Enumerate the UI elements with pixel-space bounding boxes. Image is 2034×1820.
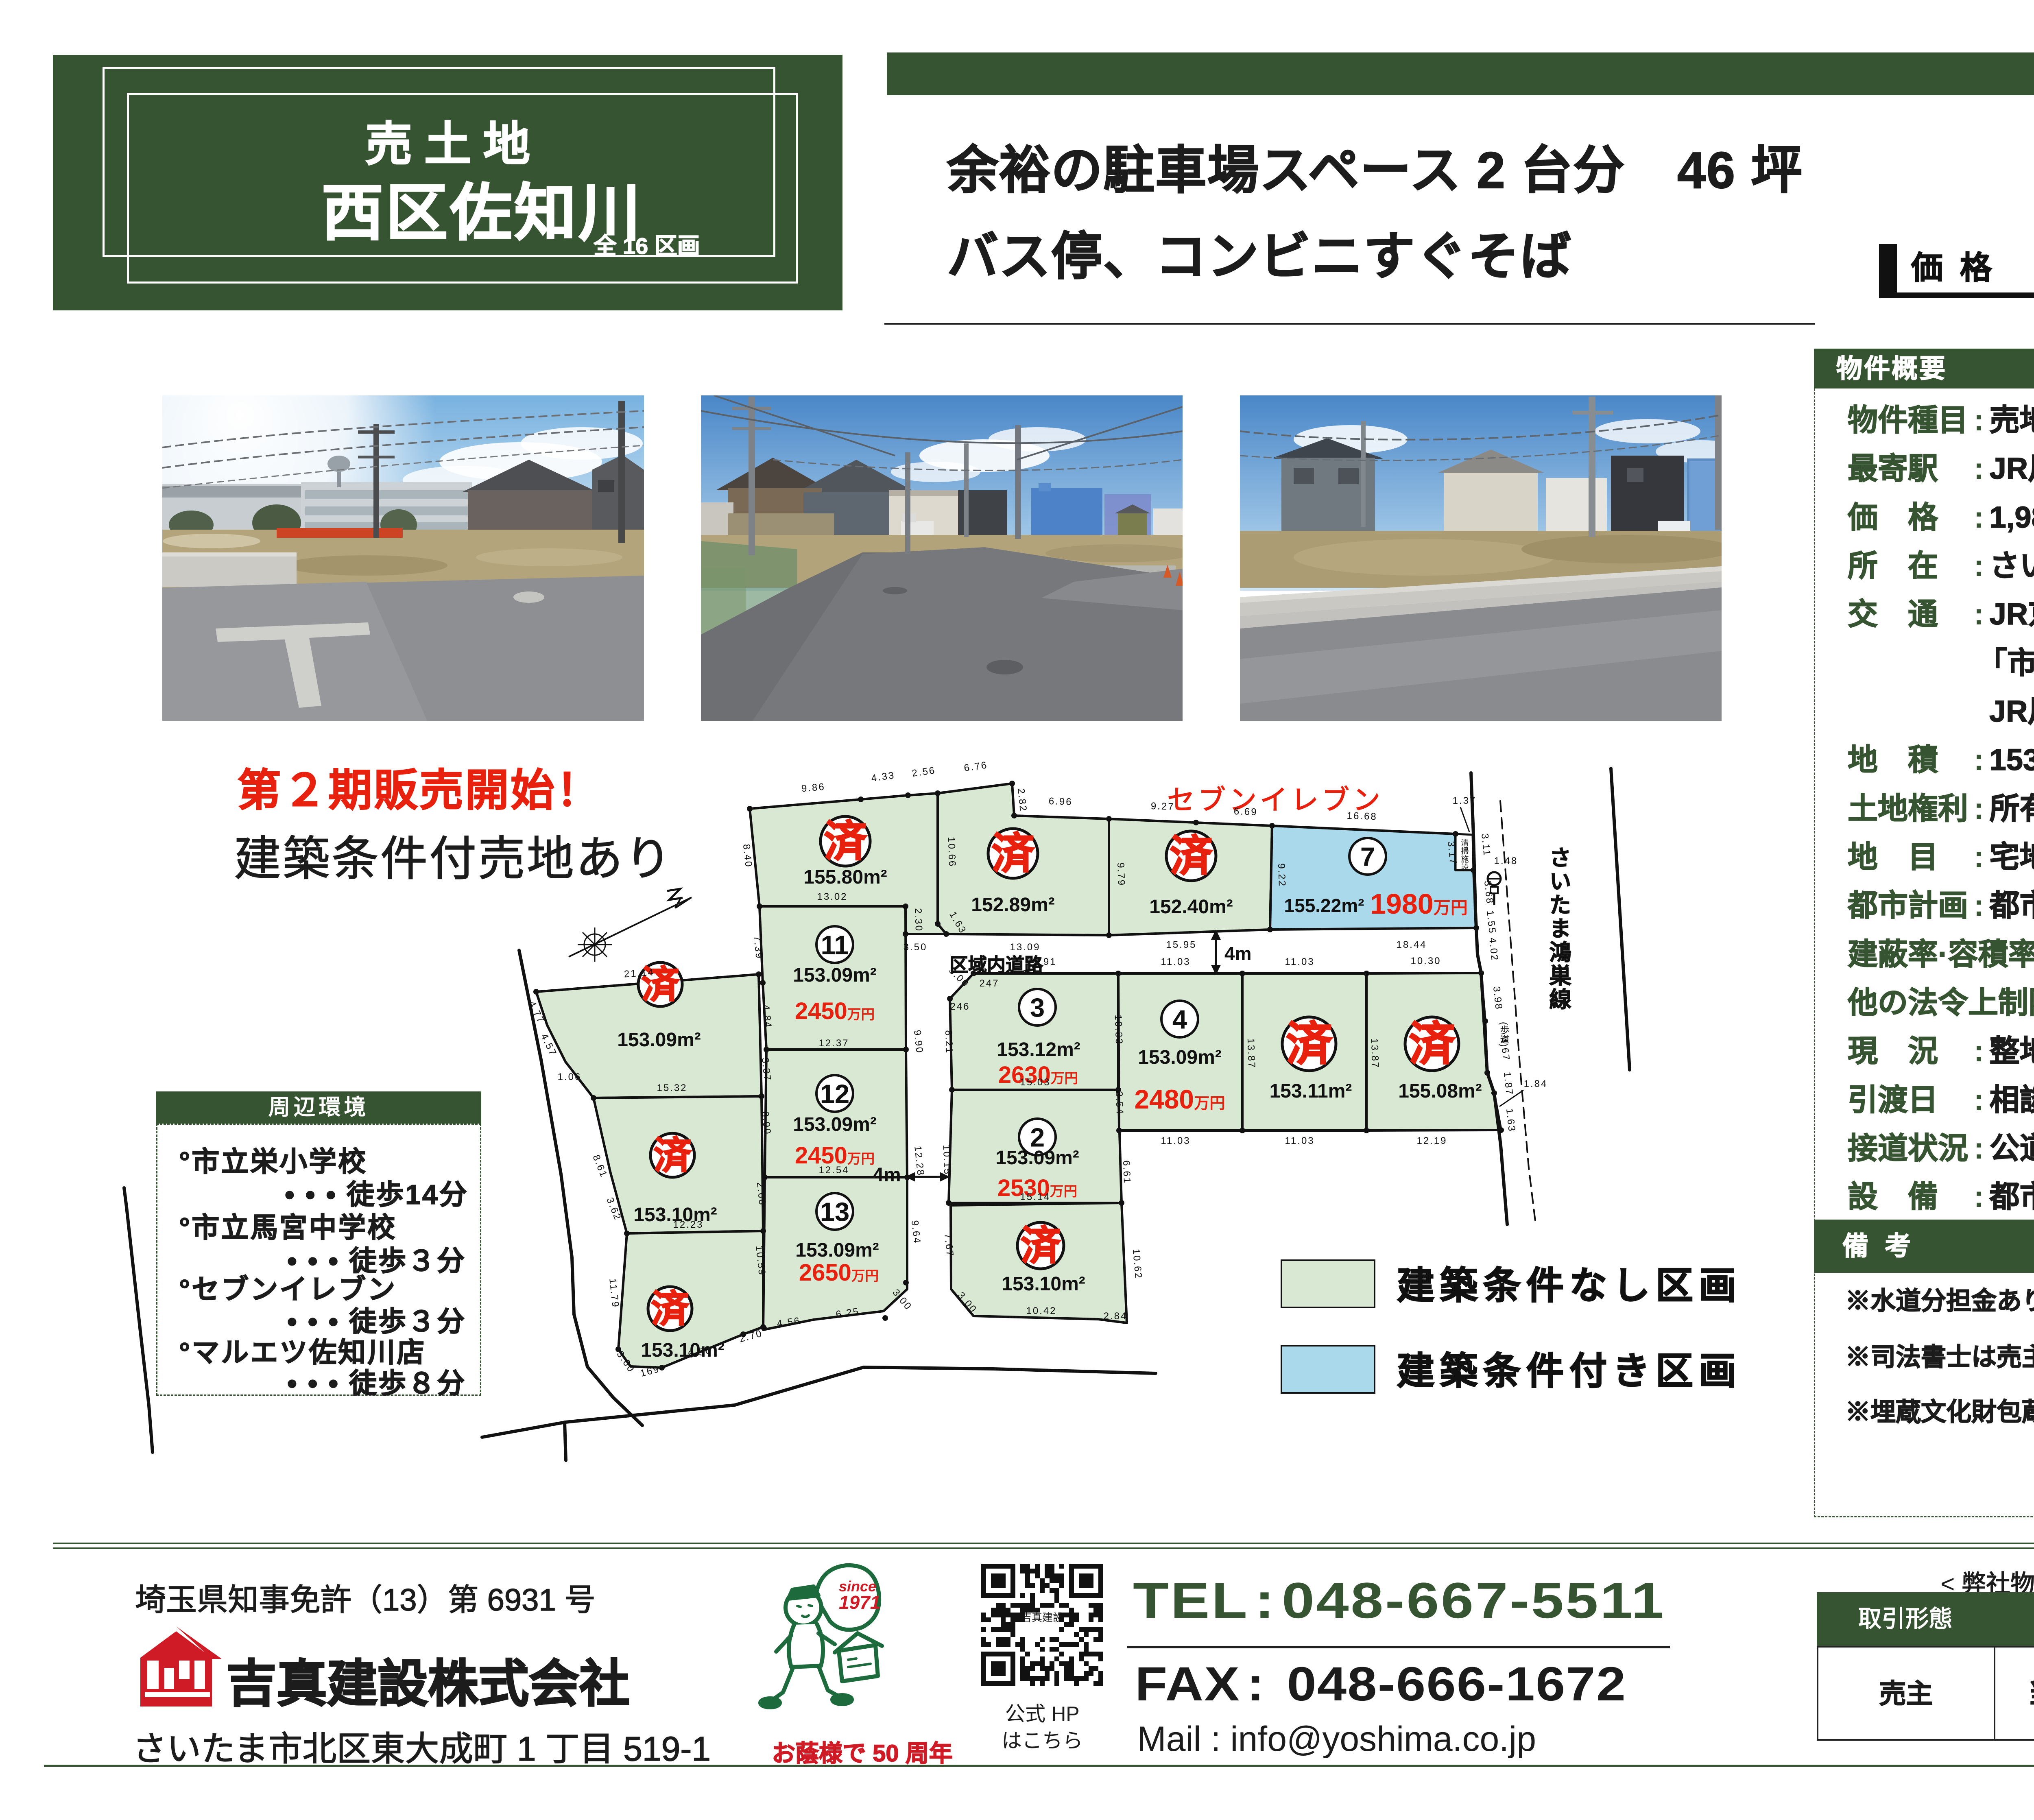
svg-text:4.33: 4.33 bbox=[871, 770, 896, 784]
svg-text:153.12m²: 153.12m² bbox=[997, 1039, 1080, 1061]
svg-text:3.54: 3.54 bbox=[1113, 1091, 1125, 1115]
svg-text:12.37: 12.37 bbox=[818, 1038, 849, 1049]
svg-text:2.84: 2.84 bbox=[1104, 1311, 1128, 1322]
svg-text:2.56: 2.56 bbox=[911, 765, 936, 779]
svg-text:13.87: 13.87 bbox=[1369, 1038, 1381, 1069]
svg-text:3.11: 3.11 bbox=[1479, 833, 1493, 857]
svg-text:4m: 4m bbox=[1224, 943, 1251, 964]
svg-text:価格: 価格 bbox=[1911, 250, 2009, 286]
svg-text:2.82: 2.82 bbox=[1015, 788, 1029, 813]
svg-text:8.40: 8.40 bbox=[741, 844, 754, 869]
svg-text:1.48: 1.48 bbox=[1494, 855, 1518, 866]
svg-text:152.40m²: 152.40m² bbox=[1149, 896, 1233, 918]
svg-text:1.37: 1.37 bbox=[1453, 795, 1477, 806]
svg-text:15.14: 15.14 bbox=[1020, 1192, 1050, 1202]
svg-text:10.15: 10.15 bbox=[941, 1145, 953, 1176]
svg-text:10.62: 10.62 bbox=[1130, 1248, 1144, 1280]
svg-text:15.95: 15.95 bbox=[1166, 939, 1196, 950]
svg-text:21.14: 21.14 bbox=[624, 967, 655, 980]
svg-text:11.79: 11.79 bbox=[607, 1278, 621, 1309]
svg-text:1.55: 1.55 bbox=[1484, 910, 1498, 935]
svg-text:153.10m²: 153.10m² bbox=[641, 1340, 724, 1361]
svg-text:246: 246 bbox=[950, 1001, 970, 1012]
svg-text:6.69: 6.69 bbox=[1233, 806, 1258, 818]
svg-text:11.03: 11.03 bbox=[1161, 1135, 1190, 1146]
svg-text:10.30: 10.30 bbox=[1410, 956, 1441, 967]
svg-text:済: 済 bbox=[1409, 1019, 1455, 1070]
svg-text:155.80m²: 155.80m² bbox=[803, 866, 887, 888]
svg-text:6.61: 6.61 bbox=[1121, 1160, 1133, 1185]
svg-text:6.76: 6.76 bbox=[963, 759, 989, 774]
svg-text:153.10m²: 153.10m² bbox=[1002, 1273, 1085, 1295]
svg-text:3.98: 3.98 bbox=[1491, 986, 1504, 1011]
svg-text:153.09m²: 153.09m² bbox=[995, 1147, 1079, 1169]
svg-text:1.63: 1.63 bbox=[1504, 1108, 1517, 1133]
svg-text:吉真建設: 吉真建設 bbox=[1021, 1611, 1063, 1624]
svg-text:済: 済 bbox=[1170, 833, 1213, 880]
svg-text:済: 済 bbox=[651, 1288, 690, 1330]
svg-text:12: 12 bbox=[820, 1079, 850, 1109]
svg-text:9.79: 9.79 bbox=[1115, 862, 1127, 887]
svg-text:10.42: 10.42 bbox=[1026, 1305, 1056, 1316]
svg-text:10.33: 10.33 bbox=[1113, 1015, 1125, 1045]
svg-text:11.03: 11.03 bbox=[1285, 956, 1314, 967]
svg-text:11: 11 bbox=[821, 930, 849, 960]
svg-text:152.89m²: 152.89m² bbox=[971, 894, 1054, 916]
svg-text:12.19: 12.19 bbox=[1416, 1135, 1447, 1146]
svg-text:18.44: 18.44 bbox=[1396, 939, 1427, 950]
svg-text:6.96: 6.96 bbox=[1048, 796, 1073, 807]
svg-text:155.08m²: 155.08m² bbox=[1398, 1080, 1482, 1102]
svg-text:3.68: 3.68 bbox=[1482, 880, 1495, 905]
svg-text:建築条件なし区画: 建築条件なし区画 bbox=[1397, 1265, 1742, 1307]
svg-text:8.21: 8.21 bbox=[943, 1030, 955, 1054]
svg-text:13.09: 13.09 bbox=[1010, 942, 1040, 953]
svg-text:7.67: 7.67 bbox=[942, 1233, 956, 1258]
svg-text:済: 済 bbox=[824, 818, 867, 866]
svg-text:9.86: 9.86 bbox=[801, 781, 826, 794]
svg-text:153.09m²: 153.09m² bbox=[793, 965, 876, 986]
svg-text:11.03: 11.03 bbox=[1285, 1135, 1314, 1146]
svg-text:9.22: 9.22 bbox=[1276, 863, 1288, 888]
svg-text:2.30: 2.30 bbox=[912, 908, 924, 932]
svg-text:1.87: 1.87 bbox=[1501, 1071, 1515, 1096]
svg-text:15.03: 15.03 bbox=[1020, 1077, 1050, 1088]
svg-text:済: 済 bbox=[1021, 1223, 1061, 1268]
svg-text:12.91: 12.91 bbox=[1026, 956, 1056, 967]
svg-text:155.22m²: 155.22m² bbox=[1284, 895, 1364, 916]
svg-text:1.84: 1.84 bbox=[1524, 1078, 1548, 1089]
svg-text:4.02: 4.02 bbox=[1487, 937, 1500, 962]
svg-text:16.68: 16.68 bbox=[1347, 810, 1377, 823]
svg-text:済: 済 bbox=[654, 1134, 692, 1176]
svg-text:13.02: 13.02 bbox=[817, 891, 847, 902]
svg-text:1.06: 1.06 bbox=[558, 1071, 582, 1082]
svg-text:4: 4 bbox=[1172, 1004, 1187, 1034]
svg-text:11.03: 11.03 bbox=[1161, 956, 1190, 967]
svg-text:7.39: 7.39 bbox=[751, 935, 765, 960]
svg-text:153.09m²: 153.09m² bbox=[1138, 1047, 1221, 1068]
svg-text:建築条件付き区画: 建築条件付き区画 bbox=[1397, 1351, 1742, 1392]
svg-text:4m: 4m bbox=[873, 1164, 901, 1186]
svg-text:済: 済 bbox=[992, 830, 1035, 878]
svg-text:13.87: 13.87 bbox=[1245, 1038, 1257, 1069]
svg-text:12.28: 12.28 bbox=[912, 1145, 926, 1176]
svg-text:4.84: 4.84 bbox=[760, 1004, 774, 1029]
svg-text:153.09m²: 153.09m² bbox=[617, 1029, 701, 1051]
svg-text:3.50: 3.50 bbox=[904, 942, 928, 953]
svg-text:12.54: 12.54 bbox=[818, 1165, 849, 1176]
svg-text:9.27: 9.27 bbox=[1150, 801, 1175, 812]
svg-text:さいたま鴻巣線: さいたま鴻巣線 bbox=[1546, 846, 1571, 1011]
svg-text:153.09m²: 153.09m² bbox=[795, 1240, 879, 1261]
svg-text:済: 済 bbox=[1286, 1019, 1332, 1070]
svg-text:153.09m²: 153.09m² bbox=[793, 1114, 876, 1135]
svg-text:247: 247 bbox=[979, 978, 999, 989]
svg-text:12.23: 12.23 bbox=[673, 1219, 703, 1230]
svg-text:9.64: 9.64 bbox=[909, 1220, 923, 1245]
svg-text:13: 13 bbox=[820, 1197, 850, 1226]
svg-text:1971: 1971 bbox=[839, 1592, 880, 1613]
svg-text:153.11m²: 153.11m² bbox=[1270, 1080, 1352, 1102]
svg-text:9.90: 9.90 bbox=[912, 1030, 925, 1054]
svg-text:7: 7 bbox=[1360, 842, 1375, 871]
svg-text:15.32: 15.32 bbox=[657, 1082, 687, 1093]
svg-text:清掃施設: 清掃施設 bbox=[1460, 839, 1469, 871]
svg-text:3: 3 bbox=[1030, 993, 1045, 1022]
svg-text:4.67: 4.67 bbox=[1498, 1037, 1512, 1062]
svg-text:10.66: 10.66 bbox=[946, 837, 958, 868]
